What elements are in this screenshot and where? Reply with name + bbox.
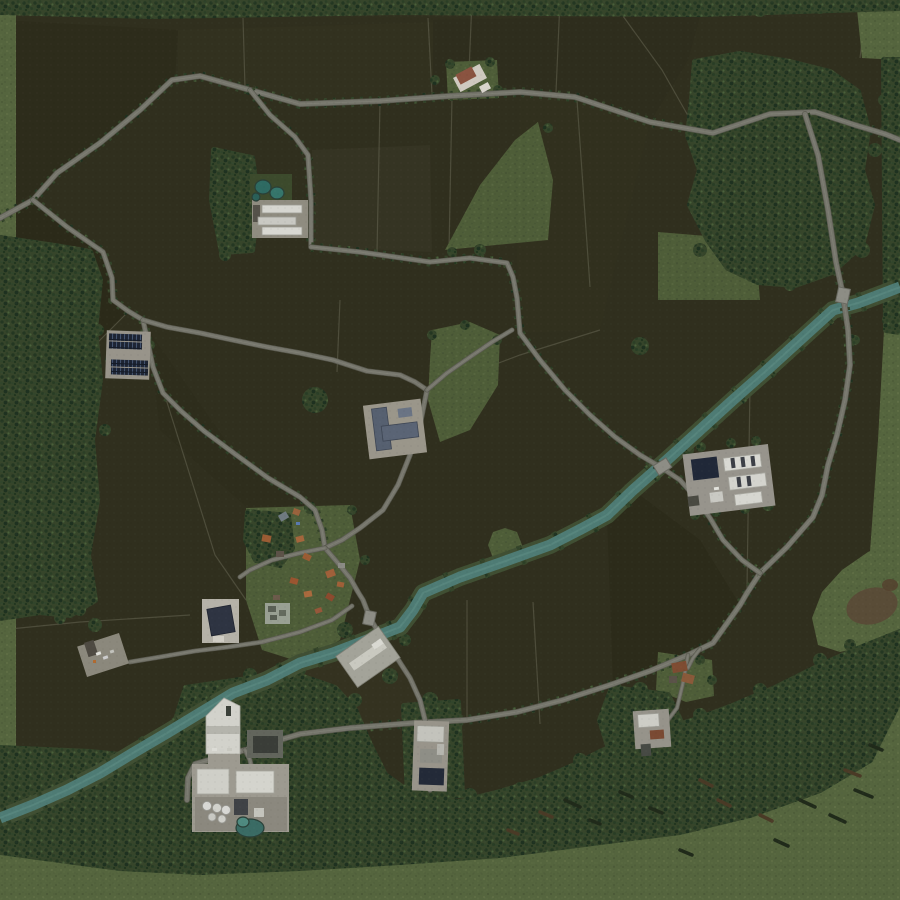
map-canvas[interactable]	[0, 0, 900, 900]
aerial-map[interactable]	[0, 0, 900, 900]
texture-overlay	[0, 0, 900, 900]
